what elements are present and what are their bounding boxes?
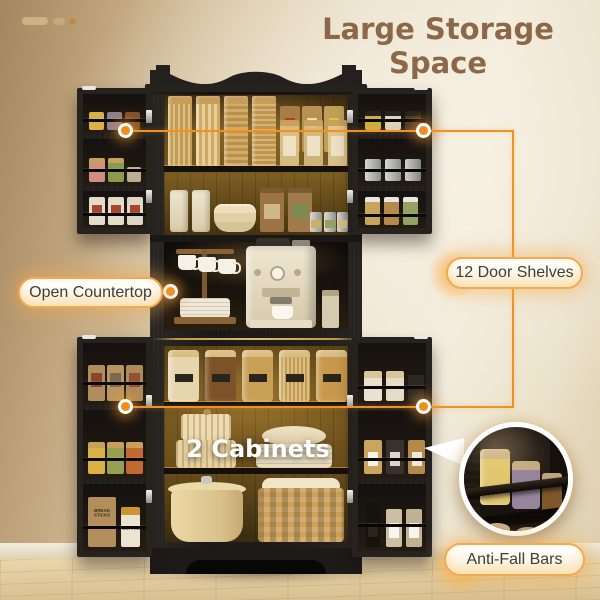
- mug-icon: [178, 255, 196, 270]
- door-shelf-cell: [83, 343, 146, 405]
- spice-bottle-icon: [386, 509, 402, 547]
- anti-fall-bars-inset: [459, 422, 573, 536]
- espresso-gauge: [270, 266, 285, 281]
- open-countertop-label: Open Countertop: [29, 284, 152, 302]
- door-shelf-cell: [358, 410, 426, 479]
- inset-pointer: [424, 438, 464, 466]
- anti-fall-bar: [83, 119, 146, 122]
- bread-sticks-bag-icon: BREAD STICKS: [88, 497, 116, 547]
- door-shelf-cell: [358, 191, 426, 228]
- anti-fall-bar: [358, 524, 426, 527]
- dash-icon: [53, 18, 65, 25]
- box-knob: [203, 409, 211, 415]
- hinge-icon: [146, 490, 152, 503]
- lidded-pot-icon: [171, 490, 243, 542]
- tea-box-icon: [127, 197, 143, 225]
- mug-icon: [198, 257, 216, 272]
- page-title: Large Storage Space: [278, 12, 598, 80]
- seed-jar-icon: [365, 197, 380, 225]
- labeled-jar-icon: [408, 440, 425, 474]
- door-edge-glint: [82, 335, 96, 339]
- anti-fall-bars-badge: Anti-Fall Bars: [444, 543, 585, 576]
- inset-light-glow: [464, 427, 568, 531]
- portafilter-icon: [270, 297, 292, 304]
- espresso-group-head: [262, 288, 300, 297]
- label-jar-icon: [304, 120, 323, 166]
- anti-fall-bar: [83, 458, 146, 461]
- shelf-board: [164, 468, 348, 474]
- spice-bottle-icon: [406, 509, 422, 547]
- spaghetti-jar-icon: [279, 350, 310, 402]
- labeled-jar-icon: [386, 440, 404, 474]
- callout-line: [125, 130, 513, 132]
- seed-jar-icon: [403, 197, 418, 225]
- door-edge-glint: [414, 335, 428, 339]
- door-shelves-badge: 12 Door Shelves: [446, 257, 583, 289]
- anti-fall-bars-label: Anti-Fall Bars: [466, 551, 562, 569]
- espresso-button: [254, 269, 261, 276]
- anti-fall-bar: [358, 214, 426, 217]
- door-shelf-cell: [83, 410, 146, 479]
- anti-fall-bar: [358, 386, 426, 389]
- coffee-bag-icon: [322, 290, 339, 328]
- hinge-icon: [347, 190, 353, 203]
- label-jar-icon: [280, 120, 299, 166]
- anti-fall-bar: [358, 119, 426, 122]
- cereal-jar-icon: [316, 350, 347, 402]
- upper-left-door: [77, 88, 152, 234]
- door-edge-glint: [82, 86, 96, 90]
- bread-sticks-label: BREAD STICKS: [92, 509, 112, 518]
- callout-dot: [166, 287, 175, 296]
- seed-jar-icon: [384, 197, 399, 225]
- base-arch-cutout: [186, 560, 326, 574]
- crown-shelf-trim: [145, 84, 367, 92]
- lower-left-door: BREAD STICKS COFFEE: [77, 337, 152, 557]
- cabinets-label: 2 Cabinets: [178, 435, 338, 463]
- callout-dot: [121, 126, 130, 135]
- wicker-basket-icon: [258, 488, 344, 542]
- door-shelf-cell: [83, 191, 146, 228]
- espresso-button: [294, 269, 301, 276]
- hinge-icon: [146, 110, 152, 123]
- snack-jar-icon: [168, 350, 199, 402]
- anti-fall-bar: [83, 526, 146, 529]
- upper-right-door: [352, 88, 432, 234]
- callout-dot: [419, 126, 428, 135]
- cabinet-base: [150, 548, 362, 574]
- hinge-icon: [146, 190, 152, 203]
- label-jar-icon: [328, 120, 347, 166]
- callout-line: [125, 406, 513, 408]
- product-scene: Large Storage Space: [0, 0, 600, 600]
- tea-tin-icon: [310, 212, 322, 232]
- callout-dot: [419, 402, 428, 411]
- anti-fall-bar: [358, 169, 426, 172]
- canister-icon: [192, 190, 210, 232]
- door-shelf-cell: [83, 139, 146, 186]
- anti-fall-bar: [83, 213, 146, 216]
- shelf-board: [164, 166, 348, 172]
- door-shelf-cell: BREAD STICKS COFFEE: [83, 484, 146, 551]
- lower-right-door: [352, 337, 432, 557]
- callout-dot: [121, 402, 130, 411]
- hinge-icon: [347, 490, 353, 503]
- mug-icon: [218, 259, 236, 274]
- drip-tray: [250, 320, 312, 328]
- open-countertop-badge: Open Countertop: [18, 277, 163, 308]
- countertop-gold-trim: [152, 338, 360, 340]
- granola-jar-icon: [242, 350, 273, 402]
- pot-knob: [201, 476, 212, 484]
- callout-line: [512, 284, 514, 408]
- callout-line: [512, 130, 514, 258]
- coffee-bag-icon: [288, 188, 312, 232]
- door-shelf-cell: [358, 139, 426, 186]
- anti-fall-bar: [83, 169, 146, 172]
- door-shelf-cell: [358, 94, 426, 134]
- dash-icon: [22, 17, 48, 25]
- coffee-bag-icon: [260, 188, 284, 232]
- door-shelf-cell: [358, 484, 426, 551]
- bowl-stack-icon: [214, 204, 256, 232]
- door-shelf-cell: [83, 94, 146, 134]
- door-shelves-label: 12 Door Shelves: [455, 264, 573, 282]
- tea-tin-icon: [337, 212, 348, 232]
- door-edge-glint: [414, 86, 428, 90]
- canister-icon: [170, 190, 188, 232]
- tea-box-icon: [89, 197, 105, 225]
- dot-icon: [69, 18, 76, 25]
- door-shelf-cell: [358, 343, 426, 405]
- mug-rack-base: [174, 317, 236, 324]
- tea-tin-icon: [324, 212, 336, 232]
- anti-fall-bar: [358, 458, 426, 461]
- hinge-icon: [347, 110, 353, 123]
- coffee-cup-icon: [272, 306, 293, 319]
- anti-fall-bar: [83, 382, 146, 385]
- tea-box-icon: [108, 197, 124, 225]
- plate-stack-icon: [180, 298, 230, 318]
- labeled-jar-icon: [364, 440, 382, 474]
- bean-jar-icon: [205, 350, 236, 402]
